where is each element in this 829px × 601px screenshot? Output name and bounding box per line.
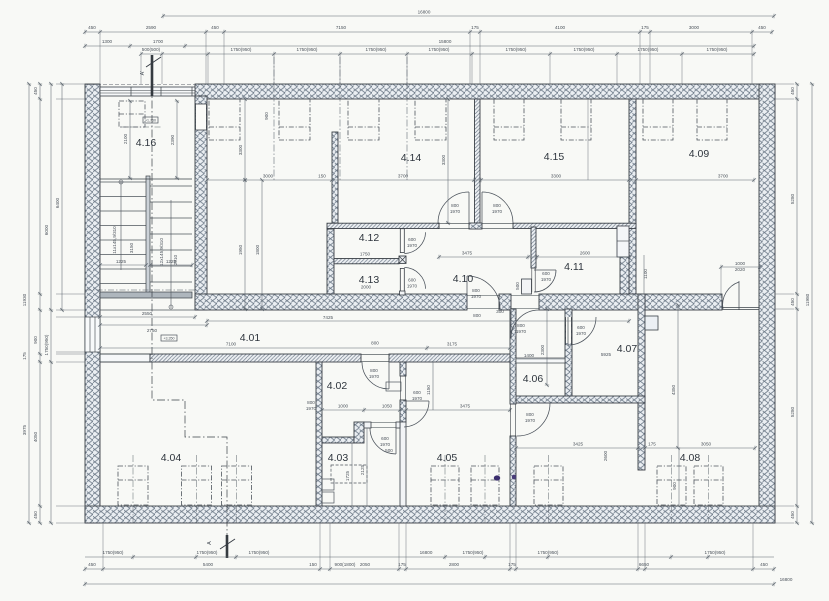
svg-text:5280: 5280	[790, 406, 795, 417]
svg-text:1750(950): 1750(950)	[297, 47, 318, 52]
svg-text:150: 150	[318, 174, 326, 179]
svg-text:2600: 2600	[603, 450, 608, 461]
svg-text:2050: 2050	[360, 562, 371, 567]
svg-text:11x145,9/310: 11x145,9/310	[112, 226, 117, 254]
svg-text:1970: 1970	[369, 374, 380, 379]
svg-text:3000: 3000	[263, 174, 274, 179]
svg-text:4050: 4050	[33, 431, 38, 442]
svg-text:450: 450	[758, 25, 766, 30]
svg-text:800: 800	[493, 203, 501, 208]
svg-text:16800: 16800	[420, 550, 433, 555]
svg-text:1300: 1300	[102, 39, 113, 44]
svg-text:2590: 2590	[146, 25, 157, 30]
svg-text:4.03: 4.03	[328, 452, 349, 464]
svg-text:800: 800	[526, 412, 534, 417]
svg-text:4.15: 4.15	[544, 151, 565, 163]
svg-text:4.01: 4.01	[240, 332, 261, 344]
svg-text:800: 800	[517, 323, 525, 328]
svg-text:450: 450	[33, 87, 38, 95]
svg-text:1750(950): 1750(950)	[638, 47, 659, 52]
svg-text:1225: 1225	[166, 259, 177, 264]
svg-text:2300: 2300	[540, 344, 545, 355]
svg-text:450: 450	[88, 25, 96, 30]
svg-text:4350: 4350	[671, 384, 676, 395]
svg-text:3050: 3050	[701, 442, 712, 447]
svg-text:1750(950): 1750(950)	[103, 550, 124, 555]
svg-text:800: 800	[472, 288, 480, 293]
svg-text:175: 175	[641, 25, 649, 30]
svg-text:1970: 1970	[306, 406, 317, 411]
svg-text:6000: 6000	[44, 224, 49, 235]
svg-text:800: 800	[451, 203, 459, 208]
svg-text:1750(950): 1750(950)	[249, 550, 270, 555]
svg-text:11980: 11980	[805, 293, 810, 306]
svg-text:900: 900	[33, 336, 38, 344]
svg-text:900: 900	[264, 112, 269, 120]
svg-text:175: 175	[471, 25, 479, 30]
svg-text:A: A	[207, 541, 213, 545]
svg-text:175: 175	[508, 562, 516, 567]
svg-text:1970: 1970	[407, 284, 418, 289]
svg-text:1750: 1750	[360, 252, 371, 257]
svg-text:1800: 1800	[255, 244, 260, 255]
svg-text:4.09: 4.09	[689, 148, 710, 160]
svg-text:450: 450	[88, 562, 96, 567]
svg-text:3150: 3150	[129, 242, 134, 253]
svg-text:6400: 6400	[55, 197, 60, 208]
svg-text:800: 800	[473, 313, 481, 318]
svg-text:1970: 1970	[407, 243, 418, 248]
svg-text:2800: 2800	[449, 562, 460, 567]
svg-text:7150: 7150	[336, 25, 347, 30]
svg-text:450: 450	[33, 511, 38, 519]
svg-text:1750(950): 1750(950)	[366, 47, 387, 52]
svg-text:1750(950): 1750(950)	[429, 47, 450, 52]
svg-text:450: 450	[760, 562, 768, 567]
svg-text:600: 600	[381, 436, 389, 441]
svg-text:2550: 2550	[142, 311, 153, 316]
svg-text:3300: 3300	[441, 154, 446, 165]
svg-text:1750(950): 1750(950)	[231, 47, 252, 52]
svg-text:450: 450	[790, 511, 795, 519]
svg-text:1000: 1000	[338, 404, 349, 409]
svg-text:4.02: 4.02	[327, 380, 348, 392]
svg-text:3300: 3300	[238, 144, 243, 155]
svg-text:3425: 3425	[573, 442, 584, 447]
svg-text:3175: 3175	[447, 342, 458, 347]
svg-text:4.07: 4.07	[617, 343, 638, 355]
svg-text:7100: 7100	[226, 342, 237, 347]
svg-text:15800: 15800	[439, 39, 452, 44]
svg-text:2020: 2020	[735, 267, 746, 272]
svg-text:2600: 2600	[580, 251, 591, 256]
svg-text:450: 450	[790, 298, 795, 306]
svg-text:4.05: 4.05	[437, 452, 458, 464]
svg-text:600: 600	[413, 390, 421, 395]
svg-text:1700: 1700	[153, 39, 164, 44]
svg-text:1970: 1970	[471, 294, 482, 299]
svg-text:4.06: 4.06	[523, 373, 544, 385]
svg-text:175: 175	[398, 562, 406, 567]
svg-text:5925: 5925	[601, 352, 612, 357]
svg-text:800: 800	[371, 341, 379, 346]
svg-text:150: 150	[309, 562, 317, 567]
svg-text:1150: 1150	[426, 385, 431, 395]
svg-text:12x145,9/310: 12x145,9/310	[159, 238, 164, 266]
svg-text:3975: 3975	[22, 424, 27, 435]
svg-text:1950: 1950	[238, 244, 243, 255]
svg-text:1970: 1970	[412, 396, 423, 401]
svg-text:1970: 1970	[492, 209, 503, 214]
svg-text:4.11: 4.11	[564, 261, 584, 273]
svg-text:450: 450	[211, 25, 219, 30]
svg-text:5400: 5400	[203, 562, 214, 567]
svg-text:1970: 1970	[450, 209, 461, 214]
svg-text:1750(950): 1750(950)	[463, 550, 484, 555]
svg-text:900: 900	[672, 482, 677, 490]
svg-text:+1,750: +1,750	[145, 119, 156, 123]
svg-text:800: 800	[307, 400, 315, 405]
svg-text:1100: 1100	[643, 269, 648, 279]
svg-text:2000: 2000	[361, 285, 372, 290]
svg-text:6650: 6650	[639, 562, 650, 567]
svg-text:1750(950): 1750(950)	[707, 47, 728, 52]
svg-text:1000: 1000	[735, 261, 746, 266]
svg-text:3000: 3000	[689, 25, 700, 30]
svg-text:1050: 1050	[382, 404, 393, 409]
svg-text:4.12: 4.12	[359, 232, 380, 244]
svg-text:1750(950): 1750(950)	[574, 47, 595, 52]
svg-text:500: 500	[385, 448, 393, 453]
svg-text:1750(950): 1750(950)	[705, 550, 726, 555]
svg-text:600: 600	[408, 278, 416, 283]
svg-text:1970: 1970	[576, 331, 587, 336]
svg-text:800: 800	[370, 368, 378, 373]
svg-text:175: 175	[22, 352, 27, 360]
svg-text:2390: 2390	[170, 134, 175, 145]
svg-text:1970: 1970	[541, 277, 552, 282]
svg-text:16800: 16800	[780, 577, 793, 582]
svg-text:1725: 1725	[345, 470, 350, 481]
svg-text:600: 600	[542, 271, 550, 276]
svg-text:1750(950): 1750(950)	[506, 47, 527, 52]
svg-text:1970: 1970	[380, 442, 391, 447]
svg-text:600: 600	[577, 325, 585, 330]
svg-text:2100: 2100	[123, 133, 128, 144]
svg-text:2125: 2125	[360, 464, 365, 475]
svg-text:900(1800): 900(1800)	[335, 562, 356, 567]
svg-text:1750(950): 1750(950)	[197, 550, 218, 555]
svg-text:1750(950): 1750(950)	[44, 334, 49, 355]
svg-text:1225: 1225	[116, 259, 127, 264]
svg-text:1400: 1400	[524, 353, 535, 358]
svg-text:1970: 1970	[525, 418, 536, 423]
svg-text:500: 500	[515, 282, 520, 290]
svg-text:4.04: 4.04	[161, 452, 182, 464]
svg-text:3475: 3475	[462, 251, 473, 256]
svg-text:1750(950): 1750(950)	[538, 550, 559, 555]
svg-text:600: 600	[408, 237, 416, 242]
svg-text:16800: 16800	[418, 10, 431, 15]
svg-text:2750: 2750	[147, 328, 158, 333]
svg-text:300: 300	[496, 309, 504, 314]
svg-text:3700: 3700	[718, 174, 729, 179]
svg-text:11930: 11930	[22, 293, 27, 306]
svg-text:4100: 4100	[555, 25, 566, 30]
svg-text:4.16: 4.16	[136, 137, 157, 149]
svg-text:175: 175	[648, 442, 656, 447]
svg-text:7425: 7425	[323, 315, 334, 320]
svg-text:4.08: 4.08	[680, 452, 701, 464]
svg-text:450: 450	[790, 87, 795, 95]
svg-text:5280: 5280	[790, 193, 795, 204]
svg-text:4.14: 4.14	[401, 152, 422, 164]
svg-text:500(500): 500(500)	[142, 47, 161, 52]
svg-text:4.10: 4.10	[453, 273, 474, 285]
svg-text:3300: 3300	[551, 174, 562, 179]
svg-text:+3,350: +3,350	[163, 337, 174, 341]
svg-text:3475: 3475	[460, 404, 471, 409]
svg-text:1970: 1970	[516, 329, 527, 334]
